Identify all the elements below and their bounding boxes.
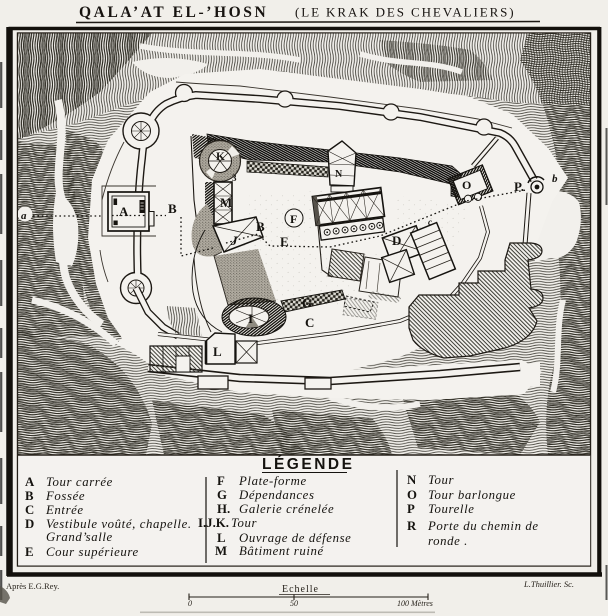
svg-text:L: L — [213, 344, 222, 359]
svg-text:0: 0 — [188, 599, 192, 608]
svg-text:E: E — [280, 234, 289, 249]
svg-text:L: L — [217, 531, 226, 545]
svg-text:B: B — [168, 201, 177, 216]
svg-text:Tour carrée: Tour carrée — [46, 475, 113, 489]
svg-text:N: N — [335, 169, 343, 180]
svg-text:L.Thuillier. Sc.: L.Thuillier. Sc. — [523, 579, 574, 589]
svg-text:I: I — [248, 311, 253, 326]
svg-text:Grand’salle: Grand’salle — [46, 530, 113, 544]
svg-text:F: F — [290, 212, 297, 226]
svg-text:Bâtiment ruiné: Bâtiment ruiné — [239, 544, 325, 558]
svg-text:Fossée: Fossée — [45, 489, 85, 503]
svg-text:Plate-forme: Plate-forme — [238, 474, 307, 488]
svg-text:Galerie crénelée: Galerie crénelée — [239, 502, 334, 516]
svg-text:Tour: Tour — [428, 473, 455, 487]
svg-text:QALA’AT EL-’HOSN: QALA’AT EL-’HOSN — [79, 4, 268, 21]
svg-text:100 Mètres: 100 Mètres — [397, 599, 433, 608]
svg-text:N: N — [407, 473, 417, 487]
svg-text:c: c — [428, 217, 432, 227]
svg-text:C: C — [305, 315, 314, 330]
svg-text:E: E — [25, 545, 34, 559]
svg-text:D: D — [392, 233, 401, 248]
svg-text:Entrée: Entrée — [45, 503, 84, 517]
svg-text:H.: H. — [217, 502, 230, 516]
svg-text:Porte du chemin de: Porte du chemin de — [427, 519, 539, 533]
svg-text:Après E.G.Rey.: Après E.G.Rey. — [6, 581, 59, 591]
svg-text:Dépendances: Dépendances — [238, 488, 315, 502]
svg-text:P: P — [407, 502, 415, 516]
svg-text:(LE KRAK DES CHEVALIERS): (LE KRAK DES CHEVALIERS) — [295, 5, 516, 20]
svg-text:K: K — [216, 151, 225, 163]
svg-text:a: a — [21, 210, 27, 222]
svg-text:M: M — [215, 544, 227, 558]
svg-text:J: J — [230, 233, 238, 248]
svg-text:A: A — [119, 204, 129, 219]
svg-text:Tour: Tour — [231, 516, 258, 530]
svg-text:C: C — [25, 503, 34, 517]
svg-text:M: M — [220, 195, 232, 210]
svg-text:Vestibule voûté, chapelle.: Vestibule voûté, chapelle. — [46, 517, 192, 531]
svg-text:P.: P. — [514, 179, 524, 194]
svg-text:3: 3 — [232, 173, 237, 183]
svg-text:ronde .: ronde . — [428, 534, 468, 548]
svg-text:R: R — [407, 519, 417, 533]
svg-text:D: D — [25, 517, 34, 531]
svg-text:Echelle: Echelle — [282, 584, 319, 595]
svg-text:50: 50 — [290, 599, 298, 608]
svg-text:B: B — [25, 489, 34, 503]
svg-text:G: G — [217, 488, 227, 502]
svg-text:O: O — [462, 178, 471, 192]
svg-text:Cour supérieure: Cour supérieure — [46, 545, 139, 559]
svg-text:Tour barlongue: Tour barlongue — [428, 488, 516, 502]
svg-text:I.J.K.: I.J.K. — [198, 516, 229, 530]
svg-text:G: G — [302, 295, 312, 310]
svg-text:O: O — [407, 488, 417, 502]
svg-text:LÉGENDE: LÉGENDE — [262, 456, 354, 473]
svg-text:F: F — [217, 474, 225, 488]
svg-text:Tourelle: Tourelle — [428, 502, 475, 516]
svg-text:b: b — [552, 173, 558, 185]
svg-text:A: A — [25, 475, 35, 489]
svg-text:B: B — [256, 219, 265, 234]
svg-text:Ouvrage de défense: Ouvrage de défense — [239, 531, 351, 545]
